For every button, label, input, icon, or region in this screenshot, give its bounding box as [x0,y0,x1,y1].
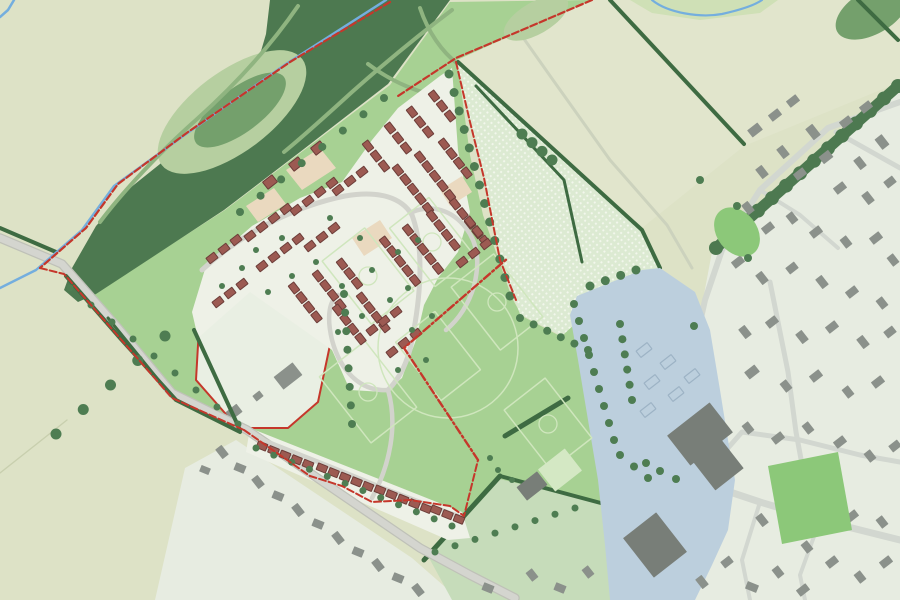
masterplan-map [0,0,900,600]
masterplan-svg [0,0,900,600]
